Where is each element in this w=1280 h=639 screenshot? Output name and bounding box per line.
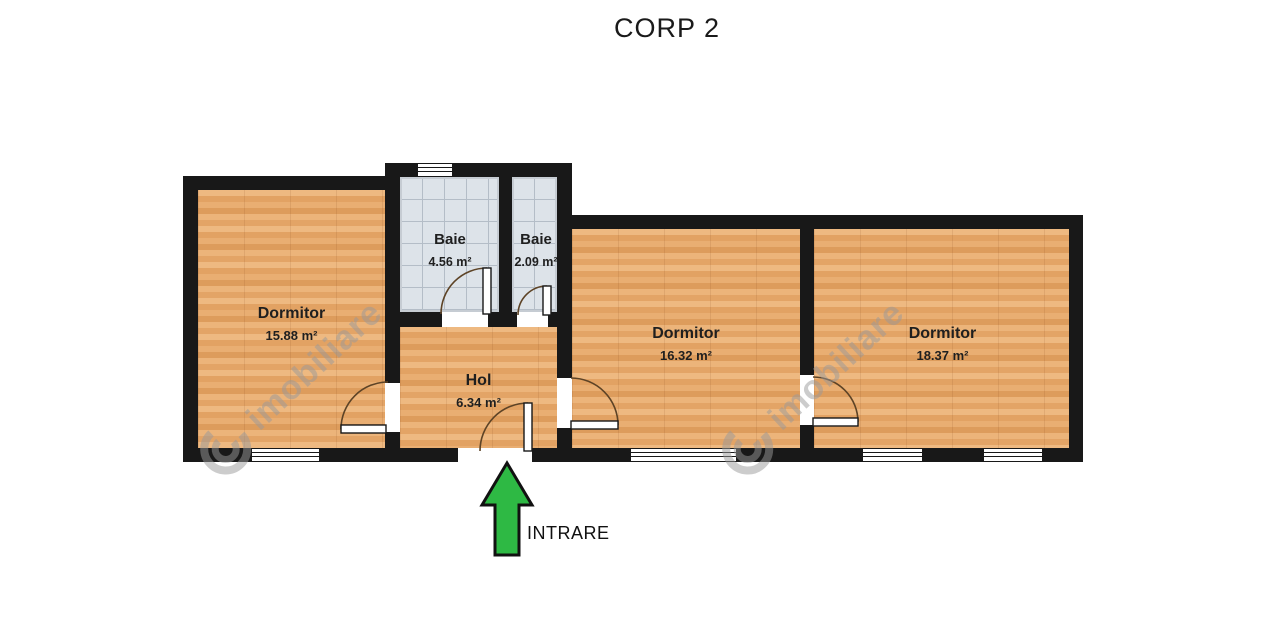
entrance-label: INTRARE	[527, 523, 610, 544]
window-dormitor2	[630, 448, 737, 462]
room-label-dormitor3: Dormitor 18.37 m²	[814, 324, 1071, 364]
room-name: Dormitor	[198, 304, 385, 323]
room-area: 18.37 m²	[814, 348, 1071, 364]
wall-right-outer	[1069, 215, 1083, 462]
wall-top-right-section	[557, 215, 1083, 229]
window-dormitor1	[251, 448, 320, 462]
door-opening-baie1	[442, 312, 488, 327]
room-label-baie2: Baie 2.09 m²	[500, 230, 572, 270]
door-opening-dormitor2	[557, 378, 572, 428]
room-area: 6.34 m²	[400, 395, 557, 411]
room-name: Dormitor	[814, 324, 1071, 343]
room-area: 16.32 m²	[572, 348, 800, 364]
window-dormitor3-right	[983, 448, 1043, 462]
room-label-baie1: Baie 4.56 m²	[395, 230, 505, 270]
door-opening-dormitor1	[385, 383, 400, 432]
room-label-hol: Hol 6.34 m²	[400, 371, 557, 411]
window-dormitor3-left	[862, 448, 923, 462]
wall-top-bathrooms	[385, 163, 572, 177]
room-label-dormitor1: Dormitor 15.88 m²	[198, 304, 385, 344]
window-baie1	[417, 163, 453, 177]
room-area: 4.56 m²	[395, 254, 505, 270]
room-area: 15.88 m²	[198, 328, 385, 344]
room-area: 2.09 m²	[500, 254, 572, 270]
floor-plan: CORP 2	[0, 0, 1280, 639]
room-name: Dormitor	[572, 324, 800, 343]
door-opening-baie2	[517, 312, 548, 327]
room-label-dormitor2: Dormitor 16.32 m²	[572, 324, 800, 364]
room-name: Hol	[400, 371, 557, 390]
room-name: Baie	[500, 230, 572, 249]
plan-title: CORP 2	[567, 13, 767, 44]
wall-top-dormitor1	[183, 176, 400, 190]
room-name: Baie	[395, 230, 505, 249]
entrance-arrow	[482, 463, 532, 555]
door-opening-entrance	[458, 448, 532, 462]
wall-left-outer	[183, 176, 198, 462]
door-opening-dormitor3	[800, 375, 814, 425]
